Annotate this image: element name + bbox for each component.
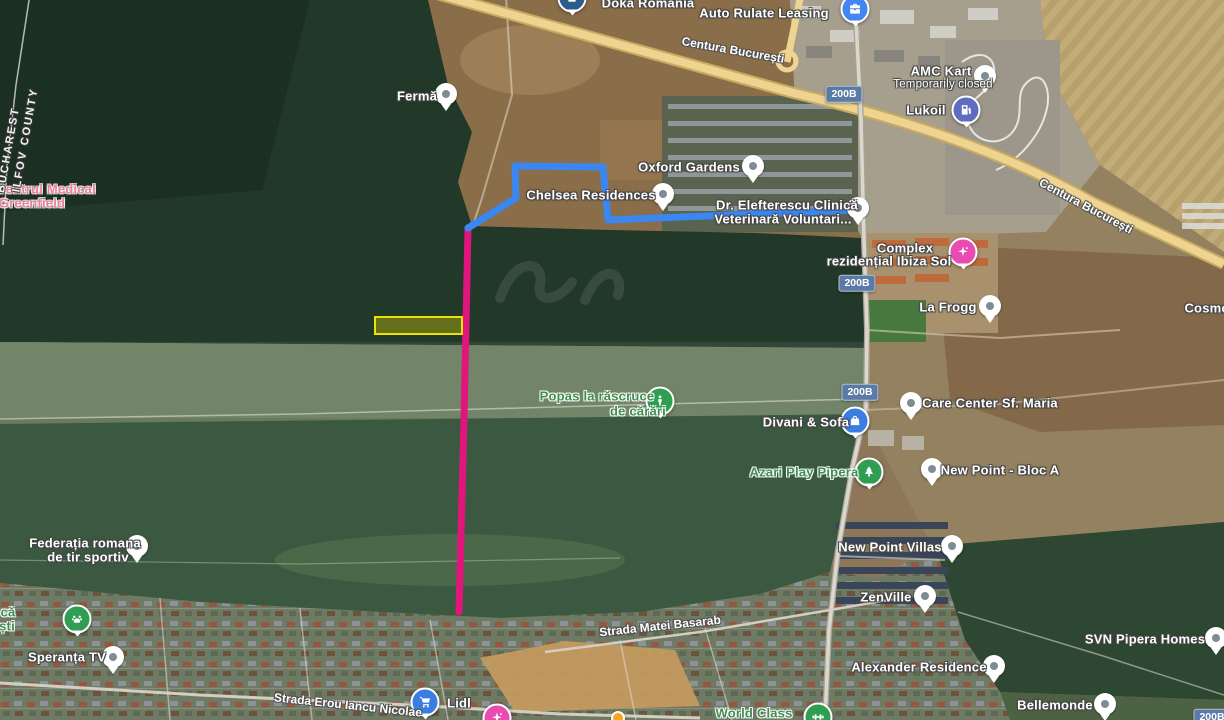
map-pin-icon — [435, 83, 457, 105]
oxford-gardens-marker[interactable] — [742, 155, 764, 177]
doka-romania-label[interactable]: Doka România — [602, 0, 695, 10]
la-frogg-label[interactable]: La Frogg — [919, 301, 976, 314]
doka-romania-marker[interactable] — [558, 0, 587, 13]
road-label: Centura București — [681, 35, 786, 65]
azari-play-pipera-marker[interactable] — [855, 458, 884, 487]
federatia-tir-sportiv-label[interactable]: de tir sportiv — [47, 551, 129, 564]
world-class-marker[interactable] — [804, 703, 833, 720]
map-pin-icon — [979, 295, 1001, 317]
briefcase-icon — [849, 3, 862, 16]
spa-icon — [957, 246, 970, 259]
chelsea-residences-label[interactable]: Chelsea Residences — [526, 189, 655, 202]
dog-park-marker[interactable] — [63, 605, 92, 634]
map-pin-icon — [742, 155, 764, 177]
poi-overlay: Doka RomâniaAuto Rulate LeasingFermăAMC … — [0, 0, 1224, 720]
new-point-villas-label[interactable]: New Point Villas — [838, 541, 941, 554]
road-badge-200B: 200B — [838, 275, 875, 292]
bag-icon — [849, 415, 862, 428]
road-badge-200B: 200B — [1193, 709, 1224, 720]
map-pin-icon — [1094, 693, 1116, 715]
ibiza-sol-marker[interactable] — [949, 238, 978, 267]
la-frogg-marker[interactable] — [979, 295, 1001, 317]
new-point-bloc-a-label[interactable]: New Point - Bloc A — [941, 464, 1060, 477]
paw-icon — [71, 613, 84, 626]
svn-pipera-homes-label[interactable]: SVN Pipera Homes — [1085, 633, 1205, 646]
lukoil-marker[interactable] — [952, 96, 981, 125]
dog-park-label[interactable]: ști — [0, 620, 15, 633]
alexander-residence-label[interactable]: Alexander Residence — [851, 661, 986, 674]
elefterescu-clinica-label[interactable]: Veterinară Voluntari... — [714, 213, 851, 226]
care-center-sf-maria-label[interactable]: Care Center Sf. Maria — [922, 397, 1058, 410]
map-pin-icon — [900, 392, 922, 414]
map-pin-icon — [941, 535, 963, 557]
ferma-label[interactable]: Fermă — [397, 90, 437, 103]
road-badge-200B: 200B — [825, 86, 862, 103]
centrul-medical-greenfield-label[interactable]: Greenfield — [0, 197, 65, 210]
hotel-poi-marker[interactable] — [483, 704, 512, 720]
ibiza-sol-label[interactable]: rezidențial Ibiza Sol — [827, 255, 952, 268]
dumbbell-icon — [812, 711, 825, 720]
road-badge-200B: 200B — [841, 384, 878, 401]
minor-poi-marker[interactable] — [611, 711, 625, 720]
fuel-icon — [960, 104, 973, 117]
road-label: Centura București — [1037, 176, 1134, 235]
lukoil-label[interactable]: Lukoil — [906, 104, 945, 117]
map-pin-icon — [1205, 627, 1224, 649]
bellemonde-marker[interactable] — [1094, 693, 1116, 715]
speranta-tv-label[interactable]: Speranța TV — [28, 651, 106, 664]
popas-rascruce-label[interactable]: Popas la răscruce — [540, 390, 655, 403]
road-label: Strada Matei Basarab — [599, 614, 722, 639]
amc-kart-label[interactable]: Temporarily closed — [893, 79, 992, 91]
dog-park-label[interactable]: că — [1, 606, 16, 619]
lidl-label[interactable]: Lidl — [447, 697, 471, 710]
spa-icon — [491, 712, 504, 720]
auto-rulate-leasing-label[interactable]: Auto Rulate Leasing — [699, 7, 828, 20]
amc-kart-label[interactable]: AMC Kart — [911, 65, 972, 78]
road-label: Strada Erou Iancu Nicolae — [273, 691, 422, 718]
zenville-marker[interactable] — [914, 585, 936, 607]
azari-play-pipera-label[interactable]: Azari Play Pipera — [750, 466, 859, 479]
bellemonde-label[interactable]: Bellemonde — [1017, 699, 1093, 712]
map-pin-icon — [914, 585, 936, 607]
world-class-label[interactable]: World Class — [715, 707, 792, 720]
auto-rulate-leasing-marker[interactable] — [841, 0, 870, 24]
zenville-label[interactable]: ZenVille — [860, 591, 911, 604]
oxford-gardens-label[interactable]: Oxford Gardens — [638, 161, 740, 174]
ferma-marker[interactable] — [435, 83, 457, 105]
popas-rascruce-label[interactable]: de cărări — [610, 405, 666, 418]
care-center-sf-maria-marker[interactable] — [900, 392, 922, 414]
svn-pipera-homes-marker[interactable] — [1205, 627, 1224, 649]
new-point-villas-marker[interactable] — [941, 535, 963, 557]
federatia-tir-sportiv-label[interactable]: Federația romana — [29, 537, 141, 550]
satellite-map-canvas[interactable]: Doka RomâniaAuto Rulate LeasingFermăAMC … — [0, 0, 1224, 720]
tree-icon — [863, 466, 876, 479]
box-icon — [566, 0, 579, 5]
elefterescu-clinica-label[interactable]: Dr. Elefterescu Clinică — [716, 199, 858, 212]
divani-sofa-label[interactable]: Divani & Sofa — [763, 416, 849, 429]
cosmopolis-label[interactable]: Cosmo — [1184, 302, 1224, 315]
